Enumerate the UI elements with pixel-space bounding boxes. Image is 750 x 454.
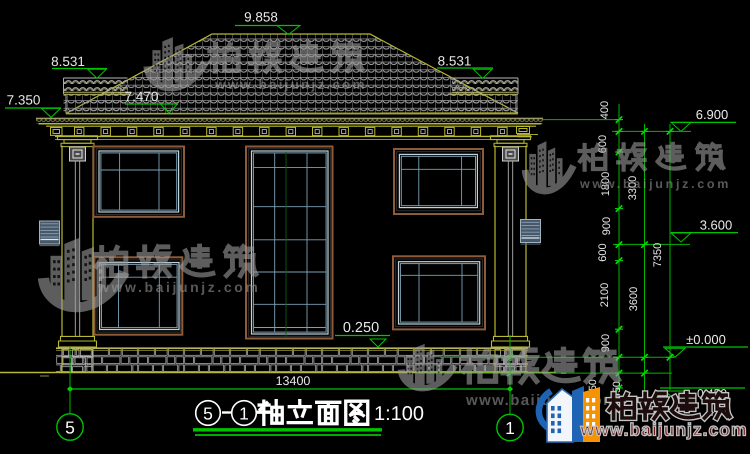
- svg-text:www.baijunjz.com: www.baijunjz.com: [579, 420, 747, 440]
- svg-text:7.470: 7.470: [125, 89, 159, 104]
- svg-text:8.531: 8.531: [51, 54, 85, 69]
- svg-text:±0.000: ±0.000: [686, 332, 726, 347]
- svg-text:5: 5: [65, 418, 75, 438]
- svg-text:3600: 3600: [628, 287, 640, 311]
- svg-text:www.baijunjz.com: www.baijunjz.com: [579, 177, 731, 191]
- svg-text:9.858: 9.858: [244, 10, 278, 25]
- svg-text:7350: 7350: [652, 243, 664, 267]
- svg-text:600: 600: [597, 243, 609, 261]
- svg-text:0.250: 0.250: [343, 320, 379, 336]
- svg-text:5: 5: [203, 404, 213, 424]
- svg-text:7.350: 7.350: [7, 93, 41, 108]
- svg-text:400: 400: [599, 101, 611, 119]
- svg-text:900: 900: [601, 217, 613, 235]
- svg-text:1: 1: [239, 404, 249, 424]
- svg-text:13400: 13400: [276, 374, 311, 388]
- svg-text:8.531: 8.531: [438, 54, 472, 69]
- svg-text:1:100: 1:100: [374, 403, 424, 425]
- svg-text:3.600: 3.600: [700, 218, 733, 233]
- svg-text:6.900: 6.900: [696, 107, 729, 122]
- svg-text:1: 1: [505, 418, 515, 438]
- svg-text:www.baijunjz.com: www.baijunjz.com: [97, 279, 260, 295]
- svg-text:www.baijunjz.com: www.baijunjz.com: [214, 77, 367, 92]
- svg-text:2100: 2100: [599, 283, 611, 307]
